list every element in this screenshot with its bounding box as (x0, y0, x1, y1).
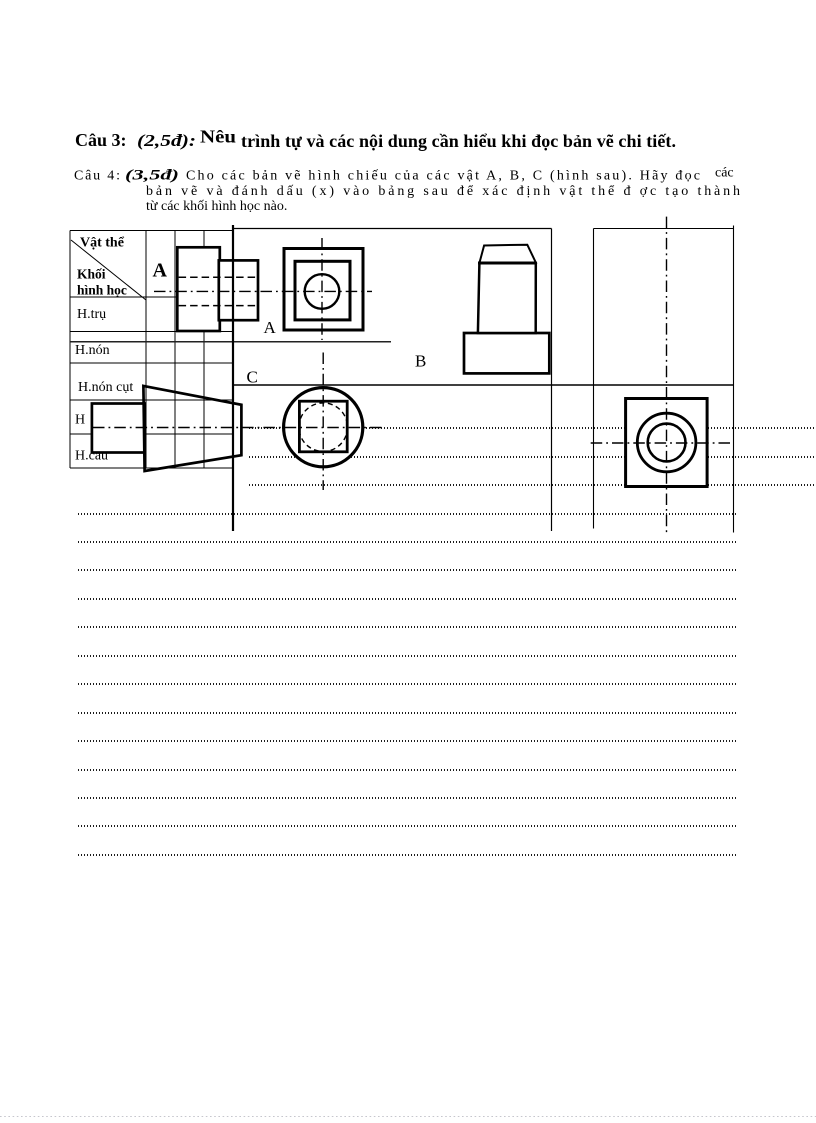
svg-text:từ các khối hình học nào.: từ các khối hình học nào. (146, 199, 287, 214)
svg-text:hình học: hình học (77, 283, 127, 298)
svg-text:(2,5đ):: (2,5đ): (137, 131, 196, 150)
svg-text:B: B (415, 352, 426, 371)
svg-text:A: A (264, 318, 277, 337)
svg-text:Vật thể: Vật thể (80, 236, 125, 251)
svg-text:Câu 3:: Câu 3: (75, 130, 127, 150)
svg-text:các: các (715, 166, 734, 181)
svg-text:Nêu: Nêu (200, 127, 236, 147)
svg-text:H.nón cụt: H.nón cụt (78, 380, 133, 395)
svg-text:bản vẽ và đánh dấu (x) vào bản: bản vẽ và đánh dấu (x) vào bảng sau để x… (146, 184, 740, 199)
svg-text:H: H (75, 413, 85, 428)
svg-text:(3,5đ): (3,5đ) (125, 168, 179, 184)
svg-text:H.trụ: H.trụ (77, 307, 106, 322)
svg-text:H.nón: H.nón (75, 343, 110, 358)
svg-text:C: C (247, 368, 258, 387)
svg-text:Khối: Khối (77, 267, 106, 282)
svg-text:Cho các bản vẽ hình chiếu của: Cho các bản vẽ hình chiếu của các vật A,… (186, 169, 700, 184)
svg-text:A: A (153, 260, 168, 282)
svg-text:trình tự và các nội dung cần h: trình tự và các nội dung cần hiểu khi đọ… (241, 131, 676, 151)
svg-text:Câu 4:: Câu 4: (74, 169, 120, 184)
